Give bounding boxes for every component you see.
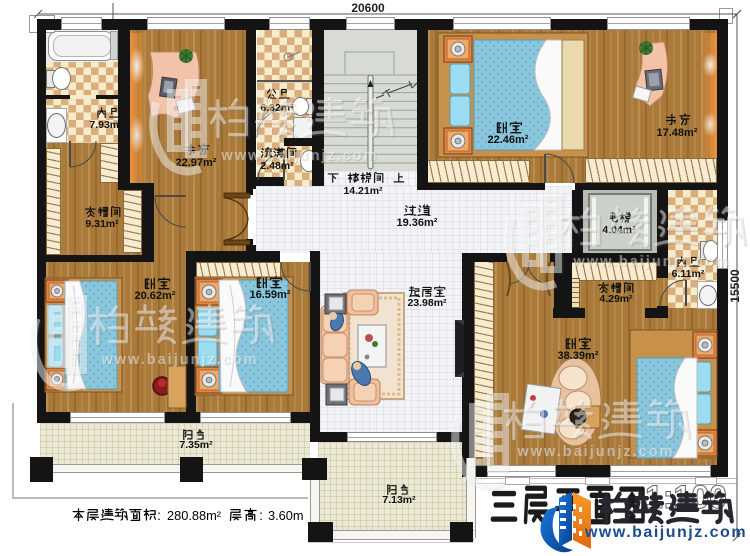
svg-text:7.35m²: 7.35m² [179,439,213,451]
svg-text:16.59m²: 16.59m² [250,289,291,301]
svg-text:19.36m²: 19.36m² [397,217,438,229]
svg-text::: : [157,508,161,523]
svg-text:www.baijunjz.com: www.baijunjz.com [220,148,378,164]
svg-text:15500: 15500 [728,269,742,303]
svg-text:www.baijunjz.com: www.baijunjz.com [572,254,730,270]
svg-text:280.88m²: 280.88m² [167,508,222,523]
svg-text:7.93m²: 7.93m² [89,119,123,131]
svg-text:22.46m²: 22.46m² [488,134,529,146]
svg-text:20.62m²: 20.62m² [135,290,176,302]
svg-text:www.baijunjz.com: www.baijunjz.com [584,524,747,541]
svg-text:www.baijunjz.com: www.baijunjz.com [100,352,258,368]
svg-text:17.48m²: 17.48m² [657,127,698,139]
svg-text:23.98m²: 23.98m² [407,297,447,309]
svg-text:www.baijunjz.com: www.baijunjz.com [516,444,674,460]
svg-text:3.60m: 3.60m [268,508,304,523]
svg-text:20600: 20600 [351,1,385,15]
svg-text:14.21m²: 14.21m² [343,185,383,197]
svg-text:9.31m²: 9.31m² [85,218,119,230]
svg-text::: : [259,508,263,523]
svg-text:38.39m²: 38.39m² [558,350,599,362]
svg-text:7.13m²: 7.13m² [382,494,416,506]
svg-text:4.29m²: 4.29m² [599,293,633,305]
